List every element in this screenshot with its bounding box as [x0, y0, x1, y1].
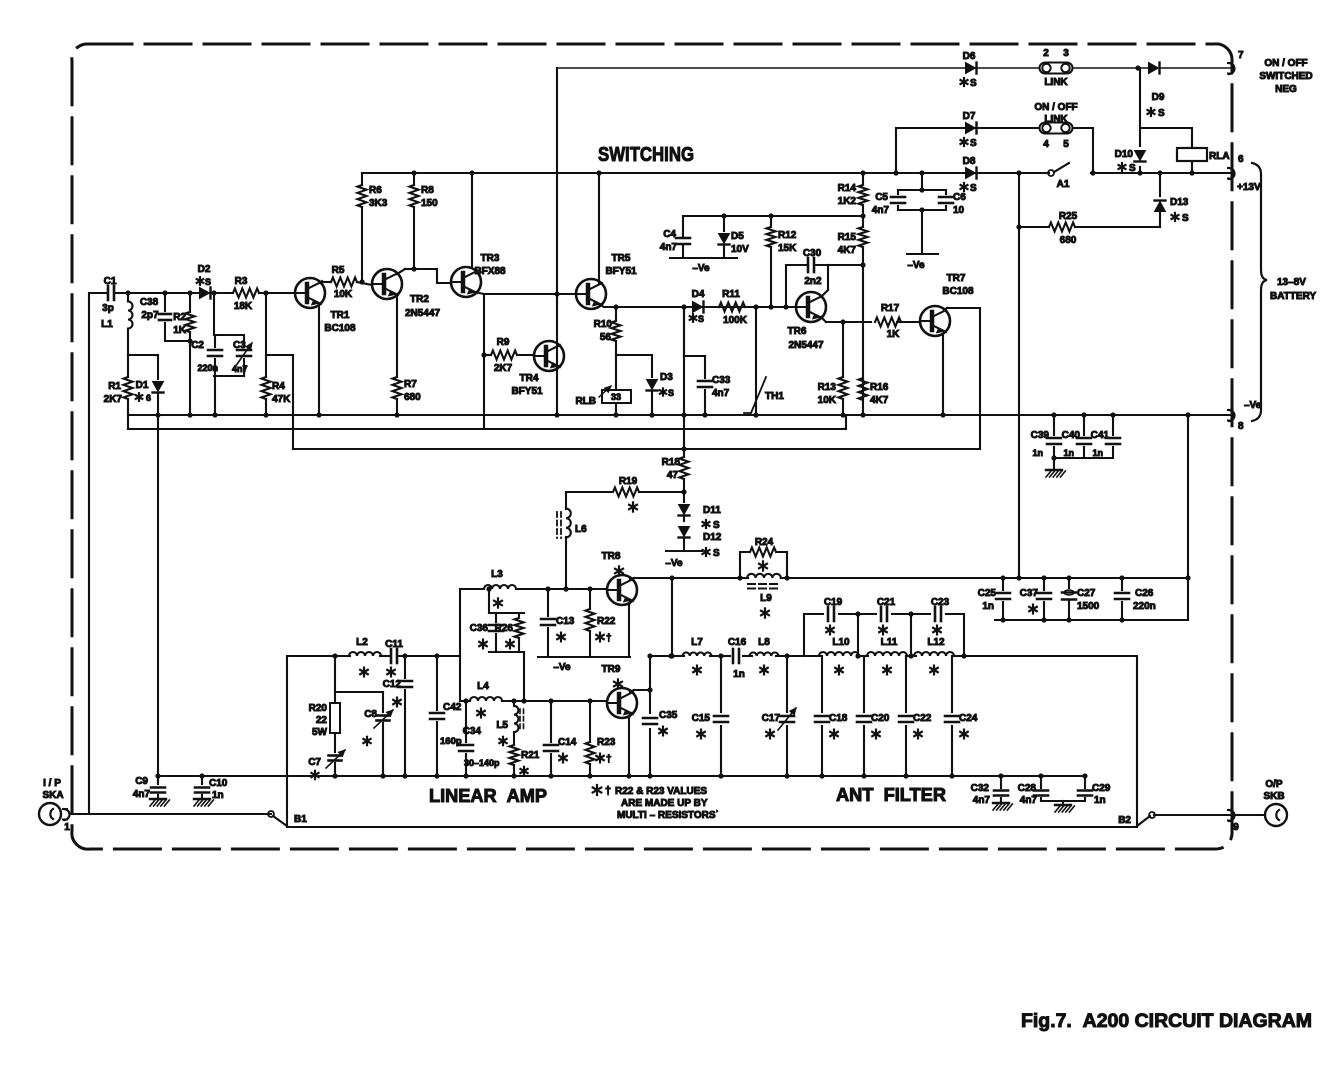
svg-text:TH1: TH1	[765, 391, 784, 402]
svg-text:R7: R7	[404, 379, 417, 390]
svg-text:TR7: TR7	[947, 273, 966, 284]
svg-text:NEG: NEG	[1275, 84, 1297, 95]
svg-text:C7: C7	[308, 757, 321, 768]
svg-text:10K: 10K	[334, 289, 353, 300]
svg-text:2N5447: 2N5447	[788, 340, 823, 351]
svg-text:–Ve: –Ve	[665, 558, 683, 569]
svg-text:R8: R8	[421, 185, 434, 196]
svg-text:D9: D9	[1152, 92, 1165, 103]
svg-text:R21: R21	[521, 750, 540, 761]
svg-text:R11: R11	[722, 289, 740, 300]
svg-text:L3: L3	[491, 569, 503, 580]
svg-text:C12: C12	[383, 679, 402, 690]
svg-text:1n: 1n	[212, 790, 224, 801]
svg-text:R16: R16	[870, 382, 889, 393]
svg-text:S: S	[1158, 108, 1165, 119]
svg-text:1: 1	[64, 822, 70, 833]
svg-text:2p7: 2p7	[141, 310, 159, 321]
svg-text:C10: C10	[209, 778, 228, 789]
svg-text:C38: C38	[140, 297, 159, 308]
svg-text:4n7: 4n7	[133, 789, 151, 800]
svg-text:9: 9	[1233, 822, 1239, 833]
svg-text:47K: 47K	[272, 394, 291, 405]
svg-text:220n: 220n	[197, 363, 218, 373]
svg-text:D4: D4	[692, 289, 705, 300]
svg-text:L5: L5	[496, 720, 508, 731]
svg-text:D13: D13	[1170, 197, 1189, 208]
svg-text:C4: C4	[663, 229, 676, 240]
svg-text:R1: R1	[108, 381, 121, 392]
svg-text:10: 10	[953, 205, 965, 216]
svg-text:C23: C23	[931, 597, 950, 608]
svg-text:ARE MADE UP BY: ARE MADE UP BY	[621, 798, 708, 809]
svg-text:R12: R12	[778, 230, 797, 241]
svg-text:BC108: BC108	[942, 286, 974, 297]
svg-text:2: 2	[1043, 48, 1049, 59]
svg-text:LINK: LINK	[1044, 77, 1068, 88]
svg-text:R22: R22	[597, 616, 616, 627]
svg-text:C8: C8	[364, 709, 377, 720]
svg-text:160p: 160p	[440, 736, 462, 747]
svg-text:13–8V: 13–8V	[1277, 277, 1306, 288]
svg-text:4n7: 4n7	[660, 242, 678, 253]
svg-text:–Ve: –Ve	[553, 662, 571, 673]
svg-text:S: S	[713, 520, 720, 531]
svg-text:C32: C32	[971, 783, 990, 794]
svg-text:L11: L11	[881, 637, 898, 648]
svg-text:15K: 15K	[778, 243, 797, 254]
svg-text:3p: 3p	[102, 303, 114, 314]
svg-text:R19: R19	[619, 476, 638, 487]
svg-text:1500: 1500	[1077, 601, 1100, 612]
svg-text:C27: C27	[1077, 588, 1096, 599]
svg-text:C37: C37	[1020, 588, 1039, 599]
svg-text:LINK: LINK	[1044, 114, 1068, 125]
svg-text:S: S	[970, 78, 977, 89]
svg-text:ON / OFF: ON / OFF	[1034, 102, 1077, 113]
svg-text:C11: C11	[385, 639, 403, 650]
svg-text:C6: C6	[953, 192, 966, 203]
svg-text:C14: C14	[558, 737, 577, 748]
svg-text:S: S	[698, 314, 704, 324]
svg-text:3K3: 3K3	[369, 198, 388, 209]
svg-text:1K: 1K	[173, 325, 187, 336]
svg-text:D8: D8	[963, 156, 976, 167]
svg-text:†: †	[606, 633, 612, 644]
svg-text:C34: C34	[463, 726, 482, 737]
svg-text:R26: R26	[495, 623, 514, 634]
svg-text:–Ve: –Ve	[1244, 400, 1262, 411]
svg-text:SKB: SKB	[1263, 791, 1284, 802]
svg-text:L12: L12	[927, 637, 945, 648]
svg-text:BFY51: BFY51	[605, 266, 637, 277]
svg-text:B1: B1	[294, 814, 307, 825]
svg-text:TR9: TR9	[602, 664, 621, 675]
svg-text:D7: D7	[963, 111, 976, 122]
svg-text:BFY51: BFY51	[511, 386, 543, 397]
svg-text:18K: 18K	[234, 301, 253, 312]
svg-text:C3: C3	[233, 340, 246, 351]
svg-text:220n: 220n	[1133, 601, 1156, 612]
svg-text:C2: C2	[191, 340, 204, 351]
svg-text:TR5: TR5	[612, 253, 631, 264]
svg-text:TR3: TR3	[481, 253, 500, 264]
svg-text:R22 & R23 VALUES: R22 & R23 VALUES	[615, 786, 707, 797]
svg-text:SWITCHING: SWITCHING	[598, 144, 694, 166]
svg-text:R23: R23	[597, 737, 616, 748]
svg-text:2K7: 2K7	[494, 363, 513, 374]
svg-text:C35: C35	[659, 710, 678, 721]
svg-text:C33: C33	[712, 375, 731, 386]
svg-text:6: 6	[146, 393, 151, 403]
svg-text:C39: C39	[1031, 430, 1050, 441]
svg-text:4n7: 4n7	[872, 205, 890, 216]
svg-text:4K7: 4K7	[870, 395, 889, 406]
svg-text:+13V: +13V	[1237, 182, 1261, 193]
svg-text:2n2: 2n2	[804, 276, 822, 287]
svg-text:L2: L2	[356, 637, 368, 648]
svg-text:4K7: 4K7	[838, 245, 857, 256]
svg-text:680: 680	[1060, 235, 1077, 246]
svg-text:150: 150	[421, 198, 438, 209]
svg-text:R13: R13	[818, 382, 837, 393]
svg-text:C19: C19	[824, 597, 843, 608]
svg-text:R5: R5	[332, 265, 345, 276]
svg-text:L8: L8	[758, 637, 770, 648]
svg-text:RLA: RLA	[1209, 151, 1230, 162]
svg-text:SWITCHED: SWITCHED	[1259, 71, 1312, 82]
svg-text:1K: 1K	[887, 329, 901, 340]
svg-text:D1: D1	[136, 380, 149, 391]
svg-text:R25: R25	[1059, 211, 1078, 222]
svg-text:10V: 10V	[731, 244, 749, 255]
svg-text:1n: 1n	[733, 669, 745, 680]
svg-text:C24: C24	[959, 713, 978, 724]
svg-text:C29: C29	[1092, 783, 1111, 794]
svg-text:C26: C26	[1135, 588, 1154, 599]
svg-text:C25: C25	[978, 588, 997, 599]
svg-text:R18: R18	[662, 457, 681, 468]
svg-text:C13: C13	[556, 616, 575, 627]
svg-text:4n7: 4n7	[1020, 795, 1038, 806]
svg-text:R14: R14	[838, 183, 857, 194]
svg-text:D12: D12	[703, 532, 722, 543]
svg-text:5W: 5W	[312, 727, 328, 738]
svg-text:2N5447: 2N5447	[405, 308, 440, 319]
svg-text:C40: C40	[1062, 430, 1081, 441]
svg-text:C42: C42	[443, 702, 462, 713]
svg-text:C36: C36	[470, 623, 489, 634]
svg-text:A1: A1	[1057, 179, 1070, 190]
svg-text:C28: C28	[1018, 783, 1037, 794]
svg-text:47: 47	[667, 470, 679, 481]
svg-text:R4: R4	[272, 381, 285, 392]
svg-text:L1: L1	[101, 319, 113, 330]
svg-text:1n: 1n	[1032, 448, 1043, 458]
svg-text:TR1: TR1	[331, 310, 350, 321]
svg-text:56: 56	[600, 332, 612, 343]
svg-text:R15: R15	[838, 232, 857, 243]
svg-text:–Ve: –Ve	[692, 263, 710, 274]
svg-text:S: S	[1129, 163, 1136, 174]
svg-text:680: 680	[404, 392, 421, 403]
svg-text:100K: 100K	[723, 315, 748, 326]
svg-text:ON / OFF: ON / OFF	[1264, 58, 1307, 69]
svg-text:S: S	[205, 277, 211, 287]
svg-text:C17: C17	[762, 713, 781, 724]
svg-text:C5: C5	[875, 192, 888, 203]
svg-text:L4: L4	[477, 681, 489, 692]
svg-text:10K: 10K	[818, 395, 837, 406]
svg-text:L6: L6	[575, 524, 587, 535]
svg-text:†: †	[605, 785, 611, 797]
svg-text:I / P: I / P	[43, 778, 61, 789]
svg-text:C20: C20	[871, 713, 890, 724]
svg-text:30–140p: 30–140p	[464, 758, 500, 768]
svg-text:1n: 1n	[982, 601, 994, 612]
svg-text:C1: C1	[104, 276, 117, 287]
svg-text:L10: L10	[832, 637, 850, 648]
svg-text:D11: D11	[703, 505, 721, 516]
svg-text:C30: C30	[803, 248, 822, 259]
svg-text:D5: D5	[731, 231, 744, 242]
svg-text:S: S	[668, 388, 674, 398]
svg-text:C16: C16	[728, 637, 747, 648]
svg-text:R20: R20	[309, 703, 328, 714]
svg-text:22: 22	[316, 715, 328, 726]
svg-text:8: 8	[1238, 421, 1244, 432]
svg-text:1n: 1n	[1092, 448, 1103, 458]
svg-text:R3: R3	[235, 276, 248, 287]
svg-text:4n7: 4n7	[712, 388, 730, 399]
svg-text:S: S	[1182, 213, 1189, 224]
svg-text:2K7: 2K7	[104, 394, 123, 405]
svg-text:1n: 1n	[1094, 795, 1106, 806]
svg-text:33: 33	[611, 392, 621, 402]
svg-text:TR6: TR6	[788, 326, 807, 337]
svg-text:C21: C21	[877, 597, 896, 608]
svg-text:R2: R2	[173, 312, 186, 323]
svg-text:D2: D2	[198, 264, 211, 275]
svg-text:R24: R24	[755, 537, 774, 548]
svg-text:SKA: SKA	[42, 790, 63, 801]
svg-text:C9: C9	[135, 776, 148, 787]
svg-text:C22: C22	[913, 713, 932, 724]
svg-text:MULTI – RESISTORSʾ: MULTI – RESISTORSʾ	[617, 809, 719, 821]
svg-text:–Ve: –Ve	[907, 260, 925, 271]
svg-text:5: 5	[1063, 139, 1069, 150]
svg-text:O/P: O/P	[1265, 779, 1283, 790]
svg-text:R6: R6	[369, 185, 382, 196]
svg-text:S: S	[713, 548, 720, 559]
svg-text:1n: 1n	[1063, 448, 1074, 458]
svg-text:RLB: RLB	[575, 396, 596, 407]
svg-text:4: 4	[1043, 139, 1049, 150]
svg-text:D6: D6	[963, 51, 976, 62]
svg-text:R10: R10	[594, 319, 613, 330]
svg-text:ANT FILTER: ANT FILTER	[836, 785, 946, 805]
svg-text:TR4: TR4	[520, 373, 539, 384]
svg-text:Fig.7. A200 CIRCUIT DIAGRAM: Fig.7. A200 CIRCUIT DIAGRAM	[1021, 1011, 1312, 1032]
svg-text:R9: R9	[497, 337, 510, 348]
svg-text:L9: L9	[760, 593, 772, 604]
svg-text:S: S	[970, 183, 977, 194]
svg-text:1K2: 1K2	[838, 196, 857, 207]
svg-text:BATTERY: BATTERY	[1270, 291, 1316, 302]
svg-text:†: †	[606, 754, 612, 765]
svg-text:R17: R17	[881, 303, 900, 314]
svg-text:C41: C41	[1091, 430, 1110, 441]
svg-text:S: S	[970, 138, 977, 149]
svg-text:BFX88: BFX88	[474, 266, 506, 277]
svg-text:C18: C18	[829, 713, 848, 724]
svg-text:D10: D10	[1115, 149, 1134, 160]
svg-text:L7: L7	[691, 637, 703, 648]
svg-text:D3: D3	[660, 372, 673, 383]
svg-text:C15: C15	[692, 713, 711, 724]
svg-text:4n7: 4n7	[232, 364, 248, 374]
svg-text:TR8: TR8	[602, 551, 621, 562]
svg-text:6: 6	[1238, 154, 1244, 165]
svg-text:3: 3	[1063, 48, 1069, 59]
svg-text:BC108: BC108	[324, 323, 356, 334]
svg-text:B2: B2	[1118, 815, 1131, 826]
svg-text:TR2: TR2	[410, 294, 429, 305]
svg-text:7: 7	[1238, 50, 1244, 61]
svg-text:LINEAR AMP: LINEAR AMP	[429, 786, 547, 806]
svg-text:4n7: 4n7	[973, 795, 991, 806]
